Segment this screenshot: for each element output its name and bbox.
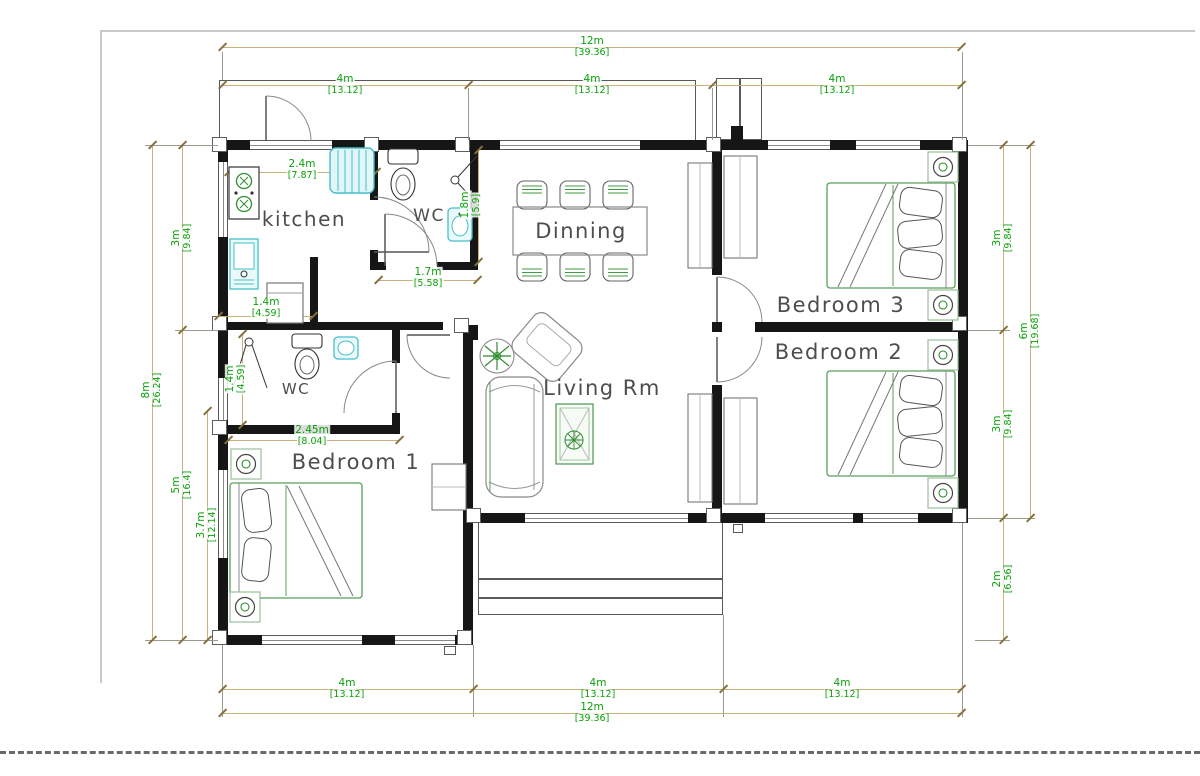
room-label-wc-bottom: WC [282,380,310,398]
dim-label-nook-width: 1.4m[4.59] [251,297,282,319]
room-label-living: Living Rm [543,376,661,400]
dim-label-bedroom1-width: 2.45m[8.04] [294,425,330,447]
dim-label-bottom-seg2: 4m[13.12] [580,678,617,700]
dim-label-right-2m: 2m[6.56] [992,564,1014,595]
toilet-icon [388,149,418,200]
sofa [486,377,543,497]
floor-plan-canvas: 12m[39.36] 4m[13.12] 4m[13.12] 4m[13.12]… [0,0,1200,776]
dim-label-bottom-total: 12m[39.36] [574,702,611,724]
dim-label-right-3m-top: 3m[9.84] [992,223,1014,254]
coffee-table [556,404,593,464]
room-label-bedroom3: Bedroom 3 [777,293,906,317]
dim-label-right-3m-mid: 3m[9.84] [992,409,1014,440]
door-veranda [266,96,311,141]
room-label-wc-top: WC [413,206,445,226]
dresser-bedroom1 [432,464,466,510]
room-label-dining: Dinning [535,219,627,243]
wardrobe-bedroom2 [724,398,757,504]
room-label-kitchen: kitchen [262,207,346,231]
bed-bedroom1 [230,483,362,598]
dim-label-bottom-seg1: 4m[13.12] [329,678,366,700]
toilet-icon [292,334,322,379]
door-bedroom3 [717,277,762,322]
dim-label-top-seg1: 4m[13.12] [327,74,364,96]
tv-cabinet [688,394,712,502]
dim-label-wc-top-width: 1.7m[5.58] [413,267,444,289]
stove-icon [229,167,259,219]
dim-label-top-seg2: 4m[13.12] [574,74,611,96]
dim-label-kitchen-width: 2.4m[7.87] [287,159,318,181]
kitchen-sink-icon [230,239,258,289]
wc-sink-icon [334,337,358,359]
dining-cabinet [688,163,712,268]
kitchen-sideboard-icon [330,148,374,193]
plant-icon [480,339,514,373]
dim-label-bottom-seg3: 4m[13.12] [824,678,861,700]
dim-label-top-total: 12m[39.36] [574,36,611,58]
armchair [508,309,586,386]
dim-label-left-total: 8m[26.24] [141,372,163,409]
bed-bedroom2 [827,371,955,476]
bed-bedroom3 [827,183,955,288]
dim-label-left-3-7m: 3.7m[12.14] [196,507,218,544]
dim-label-left-5m: 5m[16.4] [171,470,193,501]
door-bedroom2 [717,337,762,382]
dim-label-left-3m: 3m[9.84] [171,223,193,254]
room-label-bedroom1: Bedroom 1 [292,450,421,474]
door-hall [407,335,450,378]
dim-label-wc-bottom-height: 1.4m[4.59] [225,364,247,395]
dim-label-top-seg3: 4m[13.12] [819,74,856,96]
dim-label-wc-top-height: 1.8m[5.9] [460,191,482,220]
wardrobe-bedroom3 [724,156,757,258]
dim-label-right-total: 6m[19.68] [1019,313,1041,350]
room-label-bedroom2: Bedroom 2 [775,340,904,364]
door-wc-bottom [344,361,396,413]
